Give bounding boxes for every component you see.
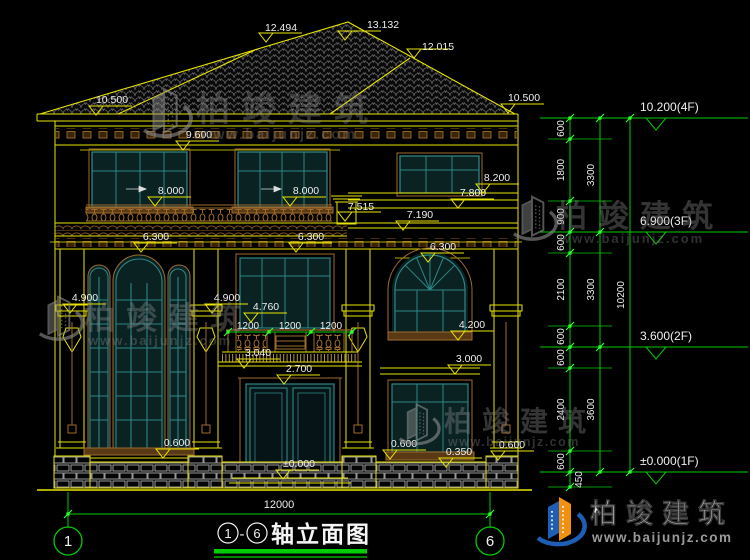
watermark-logo-icon bbox=[514, 197, 556, 239]
elevation-flag-ridge-right: 12.015 bbox=[407, 41, 454, 58]
chain-dim: 1800 bbox=[556, 158, 567, 181]
chain-dim: 600 bbox=[556, 120, 567, 137]
flag-label: 7.515 bbox=[348, 201, 374, 213]
watermark-brand: 柏竣建筑 bbox=[196, 90, 380, 129]
flag-label: 10.500 bbox=[508, 92, 540, 104]
flag-label: 10.500 bbox=[96, 94, 128, 106]
company-logo-icon bbox=[538, 497, 585, 544]
flag-label: 0.600 bbox=[164, 437, 190, 449]
flag-label: 6.300 bbox=[143, 231, 169, 243]
title-dash: - bbox=[240, 526, 245, 543]
watermark-url: www.baijunjz.com bbox=[447, 435, 580, 449]
watermark-brand: 柏竣建筑 bbox=[444, 405, 596, 437]
watermark-right: 柏竣建筑 www.baijunjz.com bbox=[514, 197, 724, 246]
watermark-url: www.baijunjz.com bbox=[559, 231, 704, 246]
elevation-flag-parapet: 7.515 bbox=[338, 201, 381, 221]
overall-width-label: 12000 bbox=[264, 499, 295, 511]
floor-level-label: 3.600(2F) bbox=[640, 329, 692, 343]
chain-dim: 3300 bbox=[586, 278, 597, 301]
chain-dim: 600 bbox=[556, 328, 567, 345]
axis-bubble-6: 6 bbox=[476, 527, 504, 555]
axis-number: 6 bbox=[486, 533, 494, 550]
flag-label: 7.190 bbox=[407, 209, 433, 221]
chain-dim: 3300 bbox=[586, 163, 597, 186]
flag-label: 3.040 bbox=[245, 347, 271, 359]
chain-dim: 600 bbox=[556, 453, 567, 470]
balcony-dim: 1200 bbox=[279, 321, 302, 332]
elevation-flag-3000: 3.000 bbox=[448, 353, 491, 374]
arched-windows-left bbox=[84, 255, 194, 458]
title-text: 轴立面图 bbox=[271, 521, 371, 547]
balcony-dim: 1200 bbox=[320, 321, 343, 332]
title-underline-thick bbox=[214, 549, 367, 554]
pilaster-3 bbox=[342, 249, 374, 448]
flag-label: 7.800 bbox=[460, 187, 486, 199]
title-axis-start: 1 bbox=[224, 526, 231, 541]
company-logo-url: www.baijunjz.com bbox=[591, 530, 733, 545]
company-logo-brand: 柏竣建筑 bbox=[590, 498, 734, 529]
floor-level-label: 10.200(4F) bbox=[640, 100, 699, 114]
watermark-url: www.baijunjz.com bbox=[87, 333, 232, 348]
pilaster-2 bbox=[190, 249, 222, 448]
chain-dim-below-ground: 450 bbox=[574, 471, 585, 488]
chain-dim-overall: 10200 bbox=[616, 281, 627, 309]
flag-label: 13.132 bbox=[367, 19, 399, 31]
flag-label: ±0.000 bbox=[283, 458, 315, 470]
flag-label: 12.494 bbox=[265, 22, 297, 34]
watermark-url: www.baijunjz.com bbox=[199, 127, 357, 143]
elevation-drawing: 13.132 12.494 12.015 10.500 10.500 9.600… bbox=[0, 0, 750, 560]
flag-label: 2.700 bbox=[286, 363, 312, 375]
flag-label: 4.200 bbox=[459, 319, 485, 331]
chain-dim: 2100 bbox=[556, 278, 567, 301]
flag-label: 6.300 bbox=[430, 241, 456, 253]
flag-label: 8.000 bbox=[293, 185, 319, 197]
chain-dim: 600 bbox=[556, 349, 567, 366]
flag-label: 8.000 bbox=[158, 185, 184, 197]
company-logo: 柏竣建筑 www.baijunjz.com bbox=[538, 497, 734, 545]
window-3f-center bbox=[232, 149, 333, 213]
axis-number: 1 bbox=[64, 533, 72, 550]
title-axis-end: 6 bbox=[253, 526, 260, 541]
watermark-brand: 柏竣建筑 bbox=[84, 301, 252, 336]
flag-label: 3.000 bbox=[456, 353, 482, 365]
flag-label: 8.200 bbox=[484, 172, 510, 184]
flag-label: 6.300 bbox=[298, 231, 324, 243]
watermark-brand: 柏竣建筑 bbox=[556, 199, 724, 234]
window-3f-left bbox=[86, 149, 193, 213]
floor-level-flags bbox=[646, 118, 666, 484]
floor-level-label: ±0.000(1F) bbox=[640, 454, 699, 468]
drawing-title: 1 - 6 轴立面图 bbox=[214, 521, 371, 557]
flag-label: 4.760 bbox=[253, 301, 279, 313]
elevation-flag-7190: 7.190 bbox=[396, 209, 439, 230]
flag-label: 12.015 bbox=[422, 41, 454, 53]
axis-bubble-1: 1 bbox=[54, 527, 82, 555]
pilaster-1 bbox=[56, 249, 88, 448]
